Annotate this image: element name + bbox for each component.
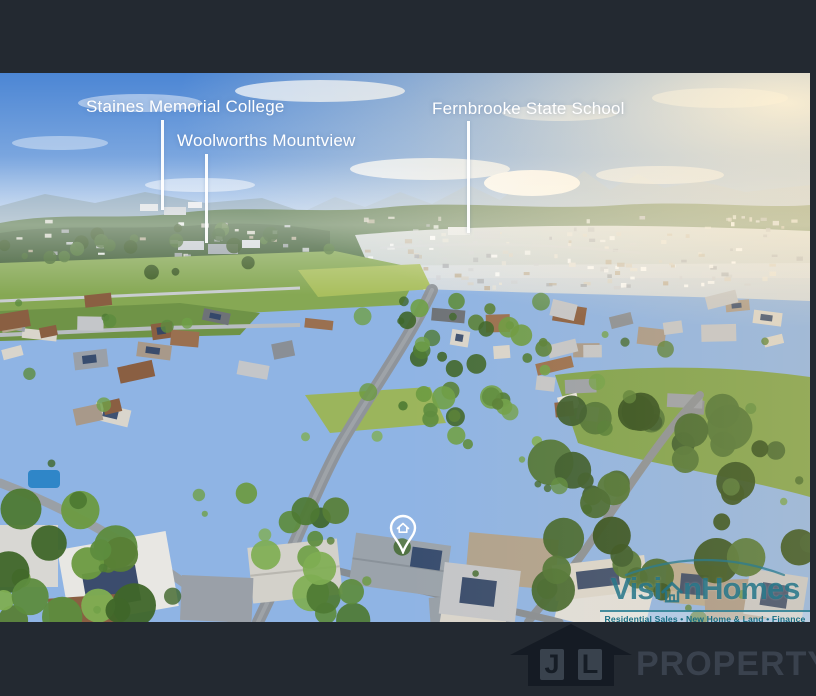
- brand-text-after: nHomes: [683, 571, 799, 607]
- property-wordmark: PROPERTY: [636, 645, 816, 684]
- property-pin-icon: [389, 514, 417, 554]
- aerial-photo: Staines Memorial College Woolworths Moun…: [0, 73, 810, 622]
- leader-line-woolworths: [205, 154, 208, 243]
- poi-label-fernbrooke-state-school: Fernbrooke State School: [432, 99, 625, 119]
- house-icon: [660, 579, 684, 606]
- watermark-tagline: Residential Sales • New Home & Land • Fi…: [600, 610, 810, 622]
- flyer-canvas: Staines Memorial College Woolworths Moun…: [0, 0, 816, 696]
- vision-homes-wordmark: Visi nHomes: [600, 573, 810, 607]
- vision-homes-watermark: Visi nHomes Residential Sales • New Home…: [600, 553, 810, 622]
- brand-text-before: Visi: [611, 571, 662, 607]
- poi-label-woolworths-mountview: Woolworths Mountview: [177, 131, 355, 151]
- jl-property-house-logo: J L: [508, 623, 634, 687]
- right-letterbox-band: [810, 0, 816, 696]
- logo-letter-l: L: [582, 649, 599, 679]
- leader-line-fernbrooke: [467, 121, 470, 233]
- poi-label-staines-memorial-college: Staines Memorial College: [86, 97, 285, 117]
- top-letterbox-band: [0, 0, 816, 73]
- leader-line-staines: [161, 120, 164, 210]
- logo-letter-j: J: [544, 649, 559, 679]
- footer-bar: J L PROPERTY: [0, 622, 816, 696]
